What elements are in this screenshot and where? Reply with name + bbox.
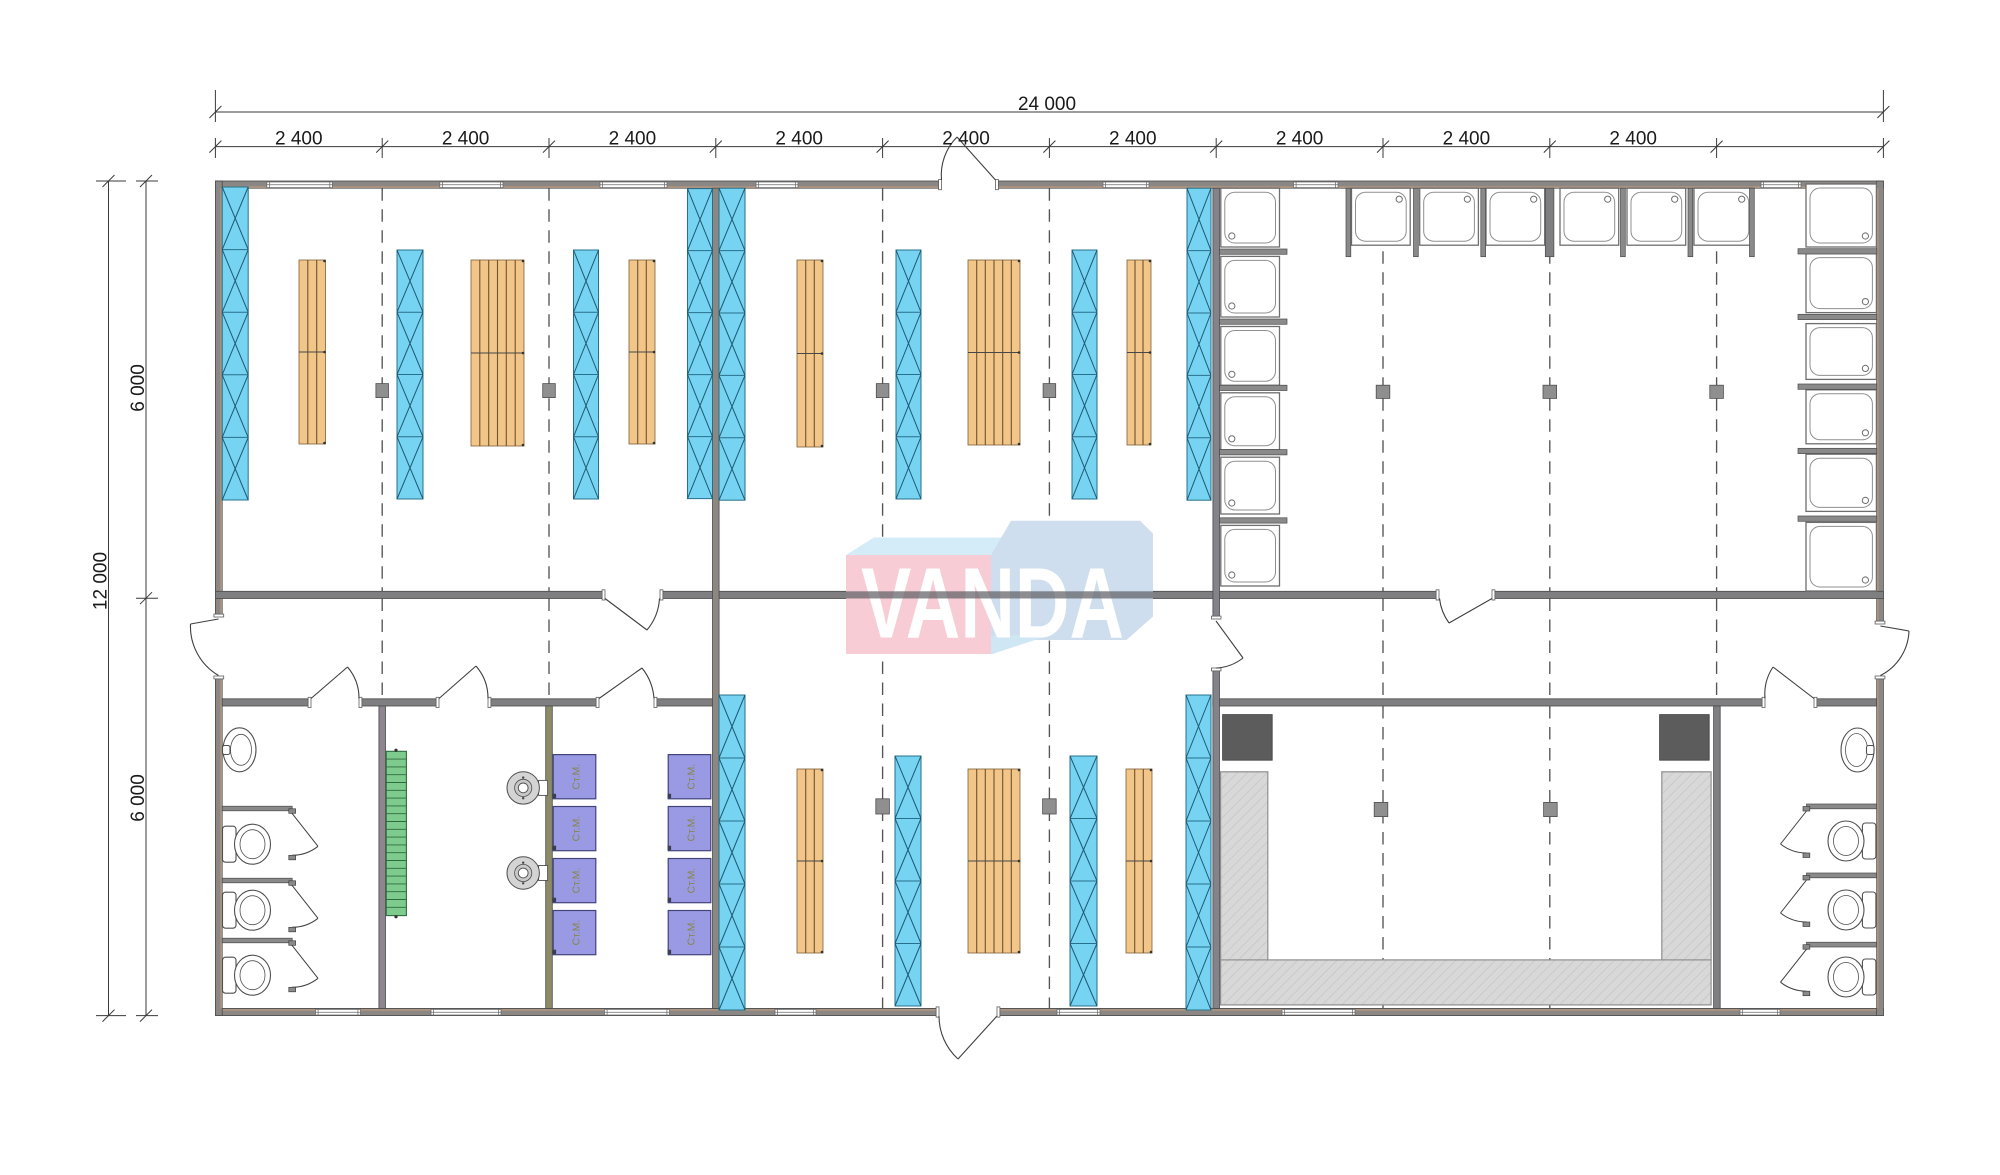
svg-text:Ст.М.: Ст.М. xyxy=(685,920,697,946)
svg-text:24 000: 24 000 xyxy=(1018,94,1076,115)
svg-text:Ст.М.: Ст.М. xyxy=(570,868,582,894)
svg-text:2 400: 2 400 xyxy=(609,128,657,149)
svg-text:Ст.М.: Ст.М. xyxy=(570,816,582,842)
svg-text:Ст.М.: Ст.М. xyxy=(685,764,697,790)
svg-text:Ст.М.: Ст.М. xyxy=(685,816,697,842)
svg-text:2 400: 2 400 xyxy=(1609,128,1657,149)
svg-text:2 400: 2 400 xyxy=(442,128,490,149)
svg-text:2 400: 2 400 xyxy=(275,128,323,149)
svg-text:2 400: 2 400 xyxy=(942,128,990,149)
svg-text:6 000: 6 000 xyxy=(128,774,149,822)
svg-text:2 400: 2 400 xyxy=(1276,128,1324,149)
svg-text:Ст.М.: Ст.М. xyxy=(570,764,582,790)
svg-text:Ст.М.: Ст.М. xyxy=(570,920,582,946)
svg-text:2 400: 2 400 xyxy=(1109,128,1157,149)
svg-text:2 400: 2 400 xyxy=(1443,128,1491,149)
svg-text:12 000: 12 000 xyxy=(91,552,112,610)
svg-text:Ст.М.: Ст.М. xyxy=(685,868,697,894)
svg-text:2 400: 2 400 xyxy=(775,128,823,149)
svg-text:6 000: 6 000 xyxy=(128,364,149,412)
svg-text:VANDA: VANDA xyxy=(861,548,1124,660)
